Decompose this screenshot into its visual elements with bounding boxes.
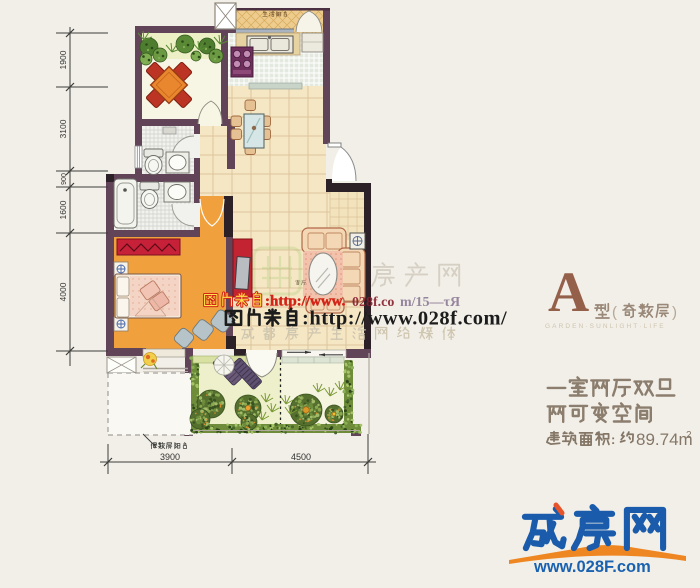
- svg-text:4500: 4500: [291, 452, 311, 462]
- svg-text::http://www.028f.com/: :http://www.028f.com/: [302, 308, 507, 330]
- svg-text:3900: 3900: [160, 452, 180, 462]
- svg-text:1600: 1600: [58, 200, 68, 219]
- svg-text:(: (: [612, 304, 617, 321]
- svg-text::: :: [611, 432, 615, 447]
- svg-text:3100: 3100: [58, 119, 68, 138]
- svg-text:1900: 1900: [58, 50, 68, 69]
- svg-text:900: 900: [61, 173, 68, 185]
- svg-text:www.028F.com: www.028F.com: [533, 558, 651, 576]
- svg-text:2: 2: [686, 430, 692, 441]
- svg-text:89.74m: 89.74m: [636, 430, 693, 449]
- svg-text:GARDEN·SUNLIGHT·LIFE: GARDEN·SUNLIGHT·LIFE: [545, 323, 666, 330]
- svg-text:A: A: [548, 261, 589, 324]
- svg-text:4000: 4000: [58, 282, 68, 301]
- svg-text:): ): [672, 304, 677, 321]
